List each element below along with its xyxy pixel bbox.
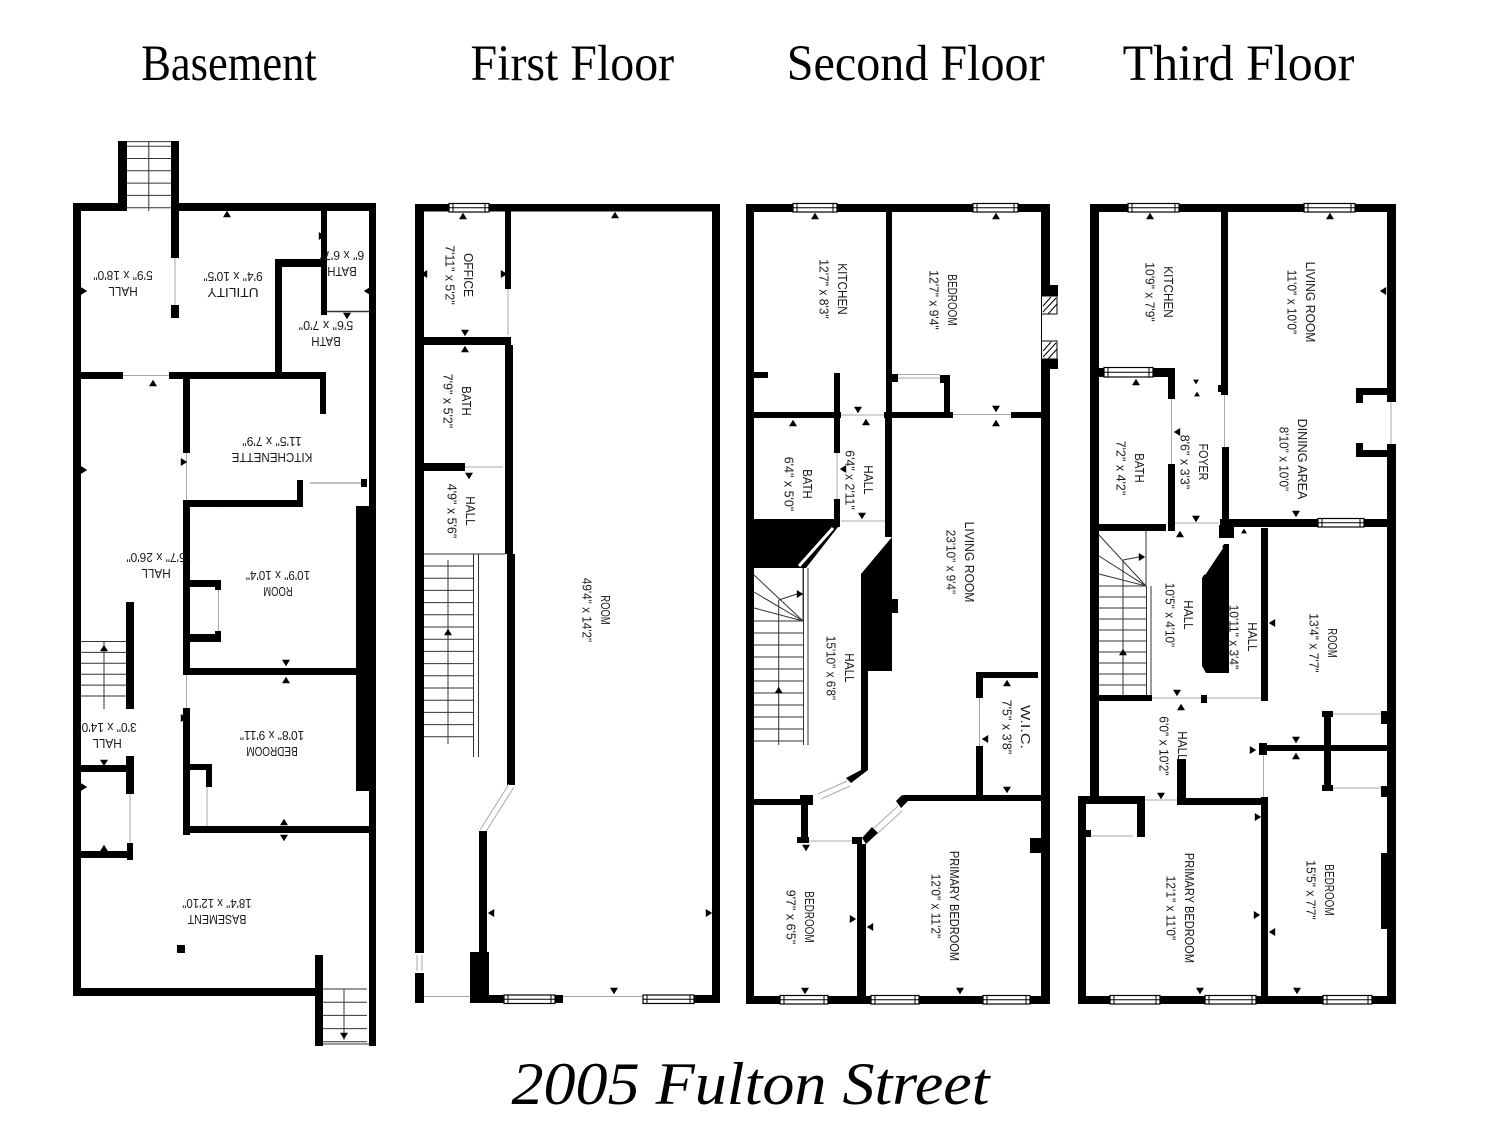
- svg-text:10'11" x 3'4": 10'11" x 3'4": [1227, 605, 1242, 670]
- svg-text:Third Floor: Third Floor: [1123, 36, 1355, 92]
- svg-text:First Floor: First Floor: [471, 36, 675, 92]
- svg-text:BEDROOM: BEDROOM: [945, 274, 960, 325]
- svg-text:12'0" x 11'2": 12'0" x 11'2": [929, 874, 944, 939]
- svg-text:UTILITY: UTILITY: [207, 285, 259, 300]
- svg-text:5'9" x 18'0": 5'9" x 18'0": [93, 268, 153, 283]
- svg-text:15'5" x 7'7": 15'5" x 7'7": [1304, 860, 1319, 920]
- svg-text:Basement: Basement: [141, 36, 317, 92]
- svg-text:HALL: HALL: [141, 566, 170, 581]
- svg-text:9'7" x 6'5": 9'7" x 6'5": [784, 890, 799, 945]
- svg-text:KITCHENETTE: KITCHENETTE: [231, 450, 312, 465]
- svg-text:HALL: HALL: [842, 653, 857, 682]
- svg-text:23'10" x 9'4": 23'10" x 9'4": [944, 530, 959, 595]
- svg-text:4'9" x 5'6": 4'9" x 5'6": [445, 484, 460, 539]
- svg-text:BATH: BATH: [800, 469, 815, 498]
- svg-text:2005 Fulton Street: 2005 Fulton Street: [512, 1051, 991, 1117]
- svg-text:HALL: HALL: [1175, 731, 1190, 760]
- svg-text:FOYER: FOYER: [1196, 444, 1211, 481]
- svg-text:BATH: BATH: [327, 264, 356, 279]
- svg-text:18'4" x 12'10": 18'4" x 12'10": [182, 896, 252, 911]
- svg-text:DINING AREA: DINING AREA: [1295, 419, 1310, 500]
- svg-text:7'9" x 5'2": 7'9" x 5'2": [441, 374, 456, 429]
- svg-text:PRIMARY BEDROOM: PRIMARY BEDROOM: [947, 851, 962, 961]
- svg-text:11'5" x 7'9": 11'5" x 7'9": [242, 434, 302, 449]
- svg-text:15'10" x 6'8": 15'10" x 6'8": [824, 636, 839, 701]
- svg-text:ROOM: ROOM: [1325, 628, 1340, 657]
- svg-text:6" x 6'7": 6" x 6'7": [319, 248, 364, 263]
- svg-text:7'5" x 3'8": 7'5" x 3'8": [1000, 700, 1015, 755]
- svg-text:BEDROOM: BEDROOM: [802, 891, 817, 942]
- svg-text:BASEMENT: BASEMENT: [188, 912, 247, 927]
- svg-text:11'0" x 10'0": 11'0" x 10'0": [1285, 270, 1300, 335]
- svg-text:10'5" x 4'10": 10'5" x 4'10": [1163, 583, 1178, 648]
- svg-text:BEDROOM: BEDROOM: [1322, 864, 1337, 915]
- svg-text:BATH: BATH: [1132, 453, 1147, 482]
- svg-text:OFFICE: OFFICE: [461, 253, 476, 297]
- svg-text:8'10" x 10'0": 8'10" x 10'0": [1277, 427, 1292, 492]
- svg-text:BEDROOM: BEDROOM: [246, 744, 297, 759]
- svg-text:LIVING ROOM: LIVING ROOM: [1303, 262, 1318, 343]
- svg-text:10'9" x 7'9": 10'9" x 7'9": [1143, 262, 1158, 322]
- svg-text:5'7" x 26'0": 5'7" x 26'0": [126, 550, 186, 565]
- svg-text:HALL: HALL: [1181, 600, 1196, 629]
- svg-text:LIVING ROOM: LIVING ROOM: [962, 522, 977, 603]
- svg-text:Second Floor: Second Floor: [787, 36, 1045, 92]
- svg-text:5'6" x 7'0": 5'6" x 7'0": [298, 318, 353, 333]
- svg-text:HALL: HALL: [92, 736, 121, 751]
- svg-text:HALL: HALL: [1245, 622, 1260, 651]
- svg-text:12'1" x 11'0": 12'1" x 11'0": [1164, 876, 1179, 941]
- svg-text:9'4" x 10'5": 9'4" x 10'5": [203, 269, 263, 284]
- svg-text:HALL: HALL: [108, 284, 137, 299]
- svg-text:12'7" x 8'3": 12'7" x 8'3": [817, 259, 832, 319]
- svg-text:7'11" x 5'2": 7'11" x 5'2": [443, 245, 458, 305]
- svg-text:ROOM: ROOM: [598, 595, 613, 624]
- svg-text:PRIMARY BEDROOM: PRIMARY BEDROOM: [1182, 853, 1197, 963]
- svg-text:KITCHEN: KITCHEN: [835, 263, 850, 314]
- svg-text:6'4" x 5'0": 6'4" x 5'0": [782, 457, 797, 512]
- svg-text:BATH: BATH: [459, 386, 474, 415]
- svg-text:6'0" x 10'2": 6'0" x 10'2": [1157, 716, 1172, 776]
- svg-text:10'8" x 9'11": 10'8" x 9'11": [239, 728, 304, 743]
- svg-text:6'4" x 2'11": 6'4" x 2'11": [843, 450, 858, 510]
- svg-text:W.I.C.: W.I.C.: [1018, 705, 1033, 749]
- svg-text:7'2" x 4'2": 7'2" x 4'2": [1114, 441, 1129, 496]
- svg-text:13'4" x 7'7": 13'4" x 7'7": [1307, 613, 1322, 673]
- svg-text:KITCHEN: KITCHEN: [1161, 266, 1176, 317]
- svg-text:3'0" x 14'0": 3'0" x 14'0": [77, 720, 137, 735]
- svg-text:12'7" x 9'4": 12'7" x 9'4": [927, 270, 942, 330]
- svg-text:HALL: HALL: [861, 465, 876, 494]
- svg-text:BATH: BATH: [311, 334, 340, 349]
- svg-text:ROOM: ROOM: [263, 584, 292, 599]
- svg-text:HALL: HALL: [463, 496, 478, 525]
- svg-text:10'9" x 10'4": 10'9" x 10'4": [245, 568, 310, 583]
- svg-text:8'6" x 3'3": 8'6" x 3'3": [1178, 435, 1193, 490]
- svg-text:49'4" x 14'2": 49'4" x 14'2": [580, 578, 595, 643]
